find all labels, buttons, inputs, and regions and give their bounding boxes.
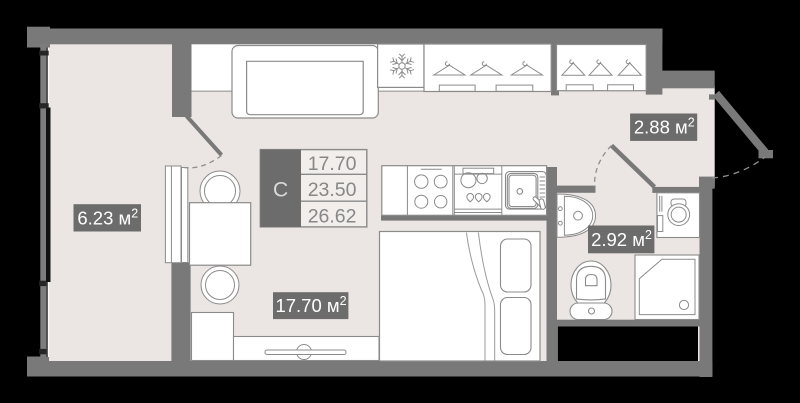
svg-text:2.92 м2: 2.92 м2 [591,228,652,250]
svg-text:17.70 м2: 17.70 м2 [275,294,346,316]
svg-text:6.23 м2: 6.23 м2 [77,207,138,229]
svg-text:26.62: 26.62 [308,205,357,227]
svg-text:2.88 м2: 2.88 м2 [634,115,695,137]
svg-text:23.50: 23.50 [308,179,357,201]
svg-text:17.70: 17.70 [308,153,357,175]
svg-text:C: C [273,179,288,202]
